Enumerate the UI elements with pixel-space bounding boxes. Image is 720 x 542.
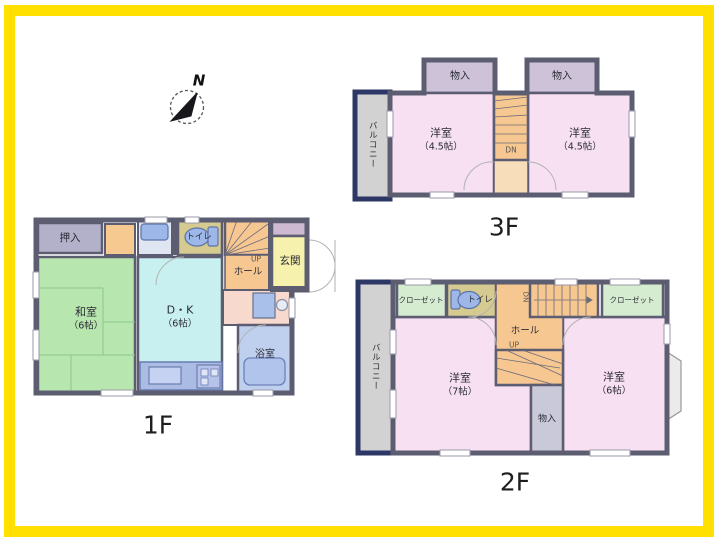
label-room-2f-left-size: （7帖） — [443, 387, 478, 397]
wall-segment — [172, 220, 178, 255]
burner — [201, 378, 208, 385]
label-dk: D・K — [167, 305, 194, 316]
kitchen-sink — [149, 367, 181, 384]
label-room-3f-right: 洋室 — [569, 128, 591, 139]
washing-machine — [253, 293, 275, 318]
floorplan-3f — [350, 55, 640, 205]
label-washitsu-size: （6帖） — [69, 321, 104, 331]
label-up-2f: UP — [509, 341, 519, 349]
laundry-pan — [277, 300, 288, 311]
label-dn-3f: DN — [505, 146, 516, 154]
stove — [197, 365, 220, 388]
label-oshiire: 押入 — [60, 233, 81, 244]
room-tokonoma — [105, 224, 135, 255]
stair-landing-3f — [494, 160, 528, 195]
burner — [201, 369, 208, 376]
wall-segment — [268, 220, 272, 290]
label-toilet-2f: トイレ — [467, 296, 493, 305]
label-dk-size: （6帖） — [163, 319, 198, 329]
label-room-2f-left: 洋室 — [449, 373, 471, 384]
label-room-3f-left: 洋室 — [430, 128, 452, 139]
label-hall-2f: ホール — [511, 326, 540, 336]
shoe-cabinet — [272, 222, 307, 236]
label-bath: 浴室 — [255, 350, 275, 360]
bathtub — [244, 358, 285, 385]
label-storage-3f-left: 物入 — [450, 72, 470, 82]
label-up-1f: UP — [251, 255, 261, 263]
stairs-2f-lower — [496, 350, 563, 385]
label-dn-2f: DN — [522, 292, 529, 303]
label-genkan: 玄関 — [280, 256, 301, 267]
label-closet-2f-left: クローゼット — [399, 296, 444, 304]
compass-icon — [160, 72, 220, 132]
label-toilet-1f: トイレ — [186, 233, 212, 242]
compass-north-label: N — [193, 74, 206, 89]
label-room-2f-right-size: （6帖） — [597, 386, 632, 396]
label-room-2f-right: 洋室 — [603, 372, 625, 383]
floor-label-1f: 1F — [143, 413, 173, 438]
label-washitsu: 和室 — [75, 307, 97, 318]
washbasin — [141, 224, 168, 240]
floorplan-page: N — [0, 0, 720, 542]
label-room-3f-left-size: （4.5帖） — [419, 142, 463, 152]
label-balcony-2f: バルコニー — [371, 343, 380, 391]
label-balcony-3f: バルコニー — [368, 121, 377, 169]
label-storage-2f: 物入 — [538, 416, 556, 425]
floor-label-2f: 2F — [500, 470, 530, 495]
label-closet-2f-right: クローゼット — [610, 296, 655, 304]
label-hall-1f: ホール — [234, 267, 263, 277]
label-room-3f-right-size: （4.5帖） — [558, 142, 602, 152]
label-storage-3f-right: 物入 — [552, 72, 572, 82]
burner — [211, 369, 218, 376]
floor-label-3f: 3F — [489, 215, 519, 240]
